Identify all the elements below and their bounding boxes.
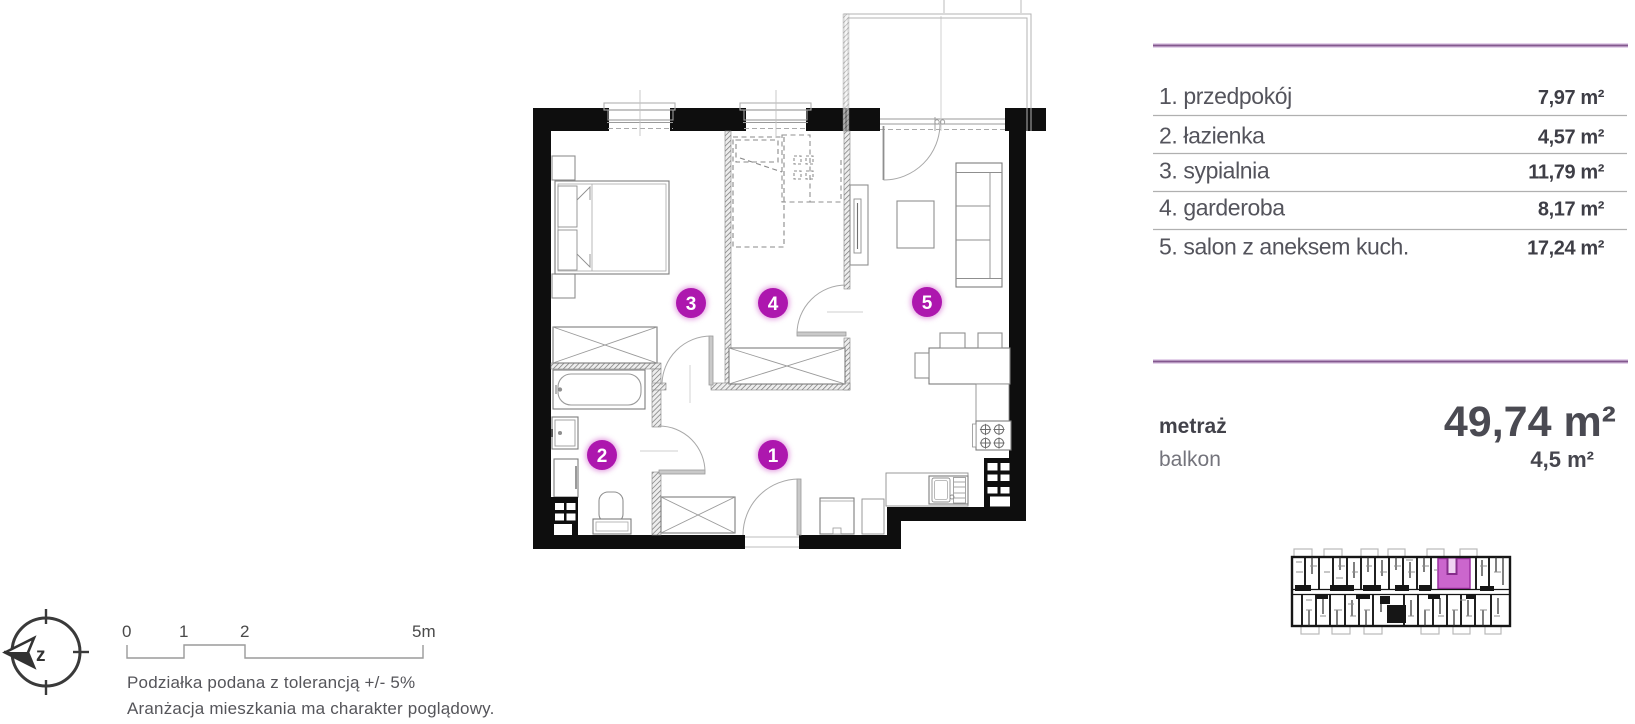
svg-text:3. sypialnia: 3. sypialnia xyxy=(1159,158,1270,184)
svg-text:4,5 m²: 4,5 m² xyxy=(1530,447,1594,472)
svg-text:1. przedpokój: 1. przedpokój xyxy=(1159,83,1292,109)
svg-text:z: z xyxy=(36,645,46,666)
svg-text:11,79 m²: 11,79 m² xyxy=(1528,162,1604,184)
svg-text:5m: 5m xyxy=(412,622,436,641)
svg-text:8,17 m²: 8,17 m² xyxy=(1538,199,1605,221)
svg-text:Aranżacja mieszkania ma charak: Aranżacja mieszkania ma charakter pogląd… xyxy=(127,699,495,718)
svg-text:2: 2 xyxy=(597,446,608,467)
svg-text:2. łazienka: 2. łazienka xyxy=(1159,123,1265,149)
svg-text:1: 1 xyxy=(179,622,188,641)
svg-text:2: 2 xyxy=(240,622,249,641)
svg-text:49,74 m²: 49,74 m² xyxy=(1444,398,1616,446)
svg-text:3: 3 xyxy=(686,294,697,315)
svg-text:5. salon z aneksem kuch.: 5. salon z aneksem kuch. xyxy=(1159,234,1409,260)
svg-text:17,24 m²: 17,24 m² xyxy=(1527,238,1605,260)
svg-text:0: 0 xyxy=(122,622,131,641)
svg-text:4,57 m²: 4,57 m² xyxy=(1538,127,1605,149)
svg-text:Podziałka podana z tolerancją: Podziałka podana z tolerancją +/- 5% xyxy=(127,673,415,692)
svg-text:7,97 m²: 7,97 m² xyxy=(1538,87,1605,109)
svg-text:balkon: balkon xyxy=(1159,448,1221,471)
svg-text:1: 1 xyxy=(768,446,779,467)
svg-text:4. garderoba: 4. garderoba xyxy=(1159,195,1285,221)
svg-text:metraż: metraż xyxy=(1159,415,1227,438)
svg-text:4: 4 xyxy=(768,294,779,315)
svg-text:5: 5 xyxy=(922,293,933,314)
